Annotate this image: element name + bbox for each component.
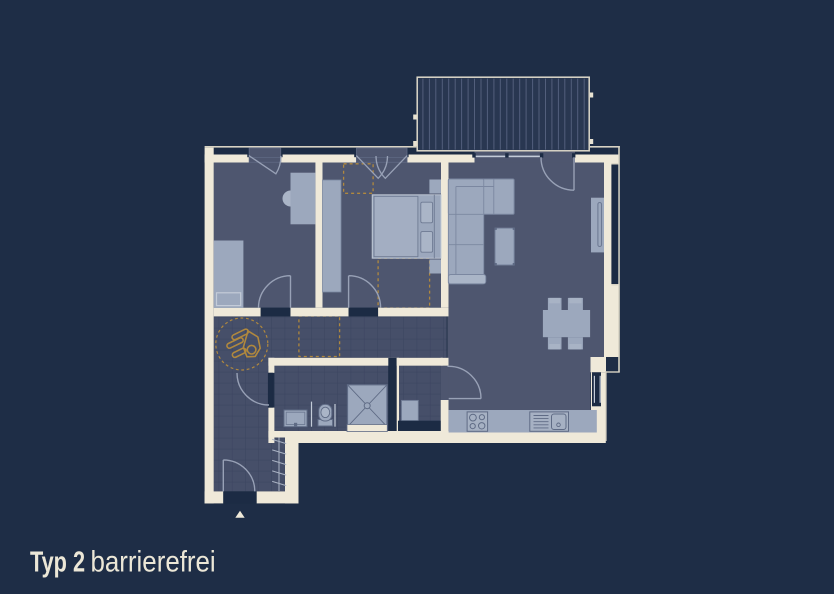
svg-text:Typ 2: Typ 2 — [30, 547, 85, 579]
svg-text:barrierefrei: barrierefrei — [91, 546, 216, 579]
